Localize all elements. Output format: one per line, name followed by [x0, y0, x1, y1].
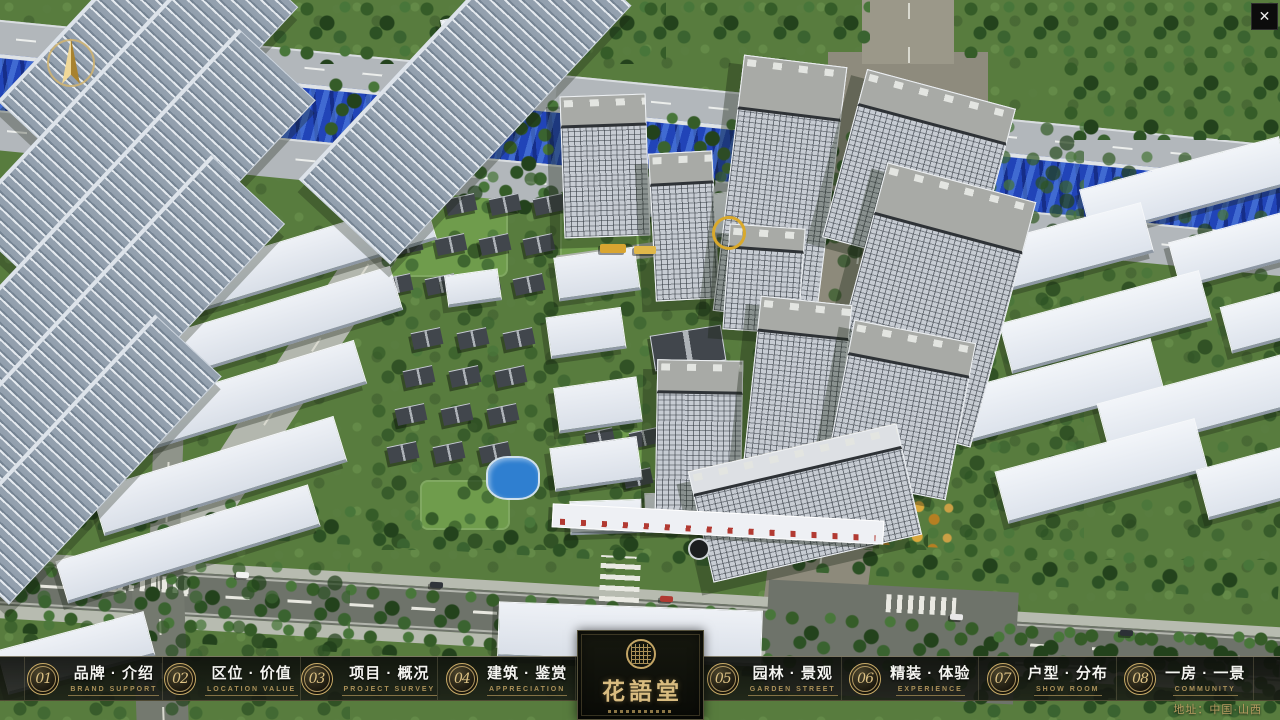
item-number-badge: 05: [707, 663, 739, 695]
crosswalk: [599, 555, 641, 603]
item-number-badge: 01: [27, 663, 59, 695]
item-number: 06: [857, 671, 873, 687]
menu-item-04[interactable]: 04建筑 · 鉴赏APPRECIATION: [438, 657, 576, 700]
item-label: 一房 · 一景: [1165, 662, 1245, 683]
car: [950, 614, 963, 621]
compass-north-icon: [42, 34, 100, 92]
menu-item-07[interactable]: 07户型 · 分布SHOW ROOM: [979, 657, 1117, 700]
tree-cluster: [960, 0, 1280, 58]
item-sublabel: LOCATION VALUE: [205, 684, 298, 696]
sales-presentation-screen: ✕ 01品牌 · 介绍BRAND SUPPORT02区位 · 价值LOCATIO…: [0, 0, 1280, 720]
item-number-badge: 03: [301, 663, 333, 695]
menu-item-08[interactable]: 08一房 · 一景COMMUNITY: [1117, 657, 1255, 700]
menu-item-05[interactable]: 05园林 · 景观GARDEN STREET: [704, 657, 842, 700]
menu-group-left: 01品牌 · 介绍BRAND SUPPORT02区位 · 价值LOCATION …: [0, 657, 576, 700]
menu-item-02[interactable]: 02区位 · 价值LOCATION VALUE: [163, 657, 301, 700]
residential-tower: [560, 94, 651, 239]
car: [660, 596, 673, 603]
swimming-pool: [486, 456, 540, 500]
item-number: 01: [35, 671, 51, 687]
item-sublabel: GARDEN STREET: [748, 684, 838, 696]
crosswalk: [886, 594, 957, 616]
gold-feature-ring: [712, 216, 746, 250]
bus: [600, 244, 626, 253]
menu-item-01[interactable]: 01品牌 · 介绍BRAND SUPPORT: [24, 657, 163, 700]
item-label: 精装 · 体验: [890, 662, 970, 683]
residential-tower: [648, 150, 720, 301]
close-button[interactable]: ✕: [1251, 3, 1278, 30]
brand-logo-panel[interactable]: 花語堂: [577, 630, 704, 720]
menu-item-03[interactable]: 03项目 · 概况PROJECT SURVEY: [301, 657, 439, 700]
menu-group-right: 05园林 · 景观GARDEN STREET06精装 · 体验EXPERIENC…: [704, 657, 1280, 700]
item-sublabel: PROJECT SURVEY: [342, 684, 438, 696]
car: [1120, 630, 1133, 637]
item-sublabel: BRAND SUPPORT: [68, 684, 159, 696]
vertical-road-top: [862, 0, 954, 64]
item-label: 区位 · 价值: [211, 662, 291, 683]
tree-cluster: [1060, 60, 1280, 140]
item-label: 品牌 · 介绍: [74, 662, 154, 683]
item-number: 02: [172, 671, 188, 687]
item-number: 04: [454, 671, 470, 687]
aerial-masterplan-render: [0, 0, 1280, 720]
item-sublabel: COMMUNITY: [1173, 684, 1238, 696]
item-number-badge: 07: [987, 663, 1019, 695]
brand-subtitle-rule: [608, 710, 674, 713]
item-label: 户型 · 分布: [1028, 662, 1108, 683]
item-number-badge: 02: [164, 663, 196, 695]
menu-item-06[interactable]: 06精装 · 体验EXPERIENCE: [842, 657, 980, 700]
tree-cluster: [640, 0, 870, 44]
item-number-badge: 04: [446, 663, 478, 695]
bus: [634, 246, 656, 254]
item-number-badge: 08: [1124, 663, 1156, 695]
item-sublabel: APPRECIATION: [487, 684, 567, 696]
brand-seal-icon: [626, 639, 656, 669]
item-number: 08: [1132, 671, 1148, 687]
item-label: 园林 · 景观: [753, 662, 833, 683]
item-sublabel: SHOW ROOM: [1034, 684, 1102, 696]
entrance-fountain: [688, 538, 710, 560]
item-label: 项目 · 概况: [349, 662, 429, 683]
item-number: 07: [995, 671, 1011, 687]
item-number: 05: [715, 671, 731, 687]
item-label: 建筑 · 鉴赏: [487, 662, 567, 683]
address-text: 地址：中国·山西: [1173, 701, 1262, 717]
car: [430, 582, 443, 589]
item-number: 03: [309, 671, 325, 687]
compass-ring: [47, 39, 95, 87]
brand-title: 花語堂: [582, 672, 703, 706]
car: [236, 572, 249, 579]
item-number-badge: 06: [849, 663, 881, 695]
item-sublabel: EXPERIENCE: [896, 684, 965, 696]
